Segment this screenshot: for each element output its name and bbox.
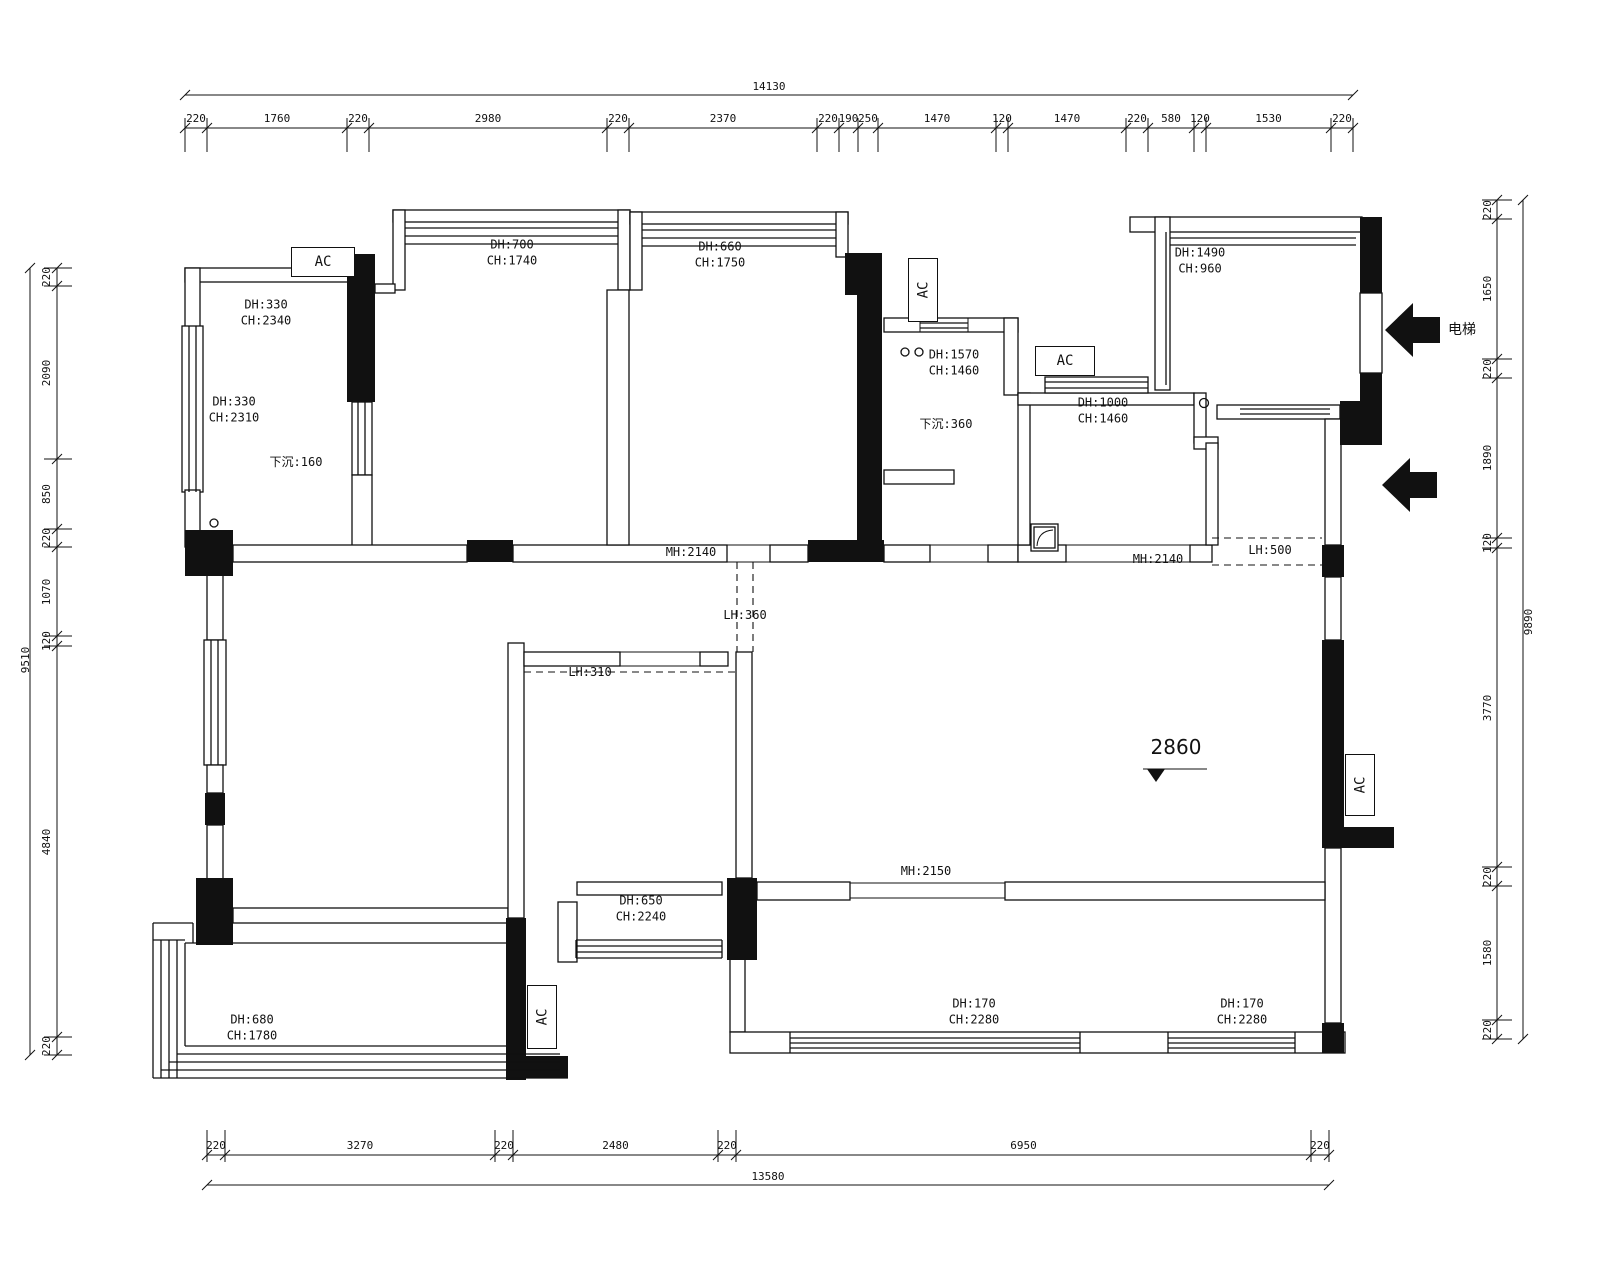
dim-label: 220 (1332, 112, 1352, 126)
label-study-window: DH:650 CH:2240 (616, 893, 667, 924)
dim-label: 250 (858, 112, 878, 126)
label-bay-window-1: DH:700 CH:1740 (487, 237, 538, 268)
label-elevator: 电梯 (1448, 321, 1476, 339)
dim-label: 13580 (751, 1170, 784, 1184)
label-lintel-study: LH:310 (568, 665, 611, 681)
dim-label: 220 (186, 112, 206, 126)
dim-label: 9510 (19, 647, 33, 674)
floor-drain (1031, 524, 1058, 551)
dim-label: 220 (40, 267, 54, 287)
ac-unit-box: AC (1035, 346, 1095, 376)
ac-label: AC (1057, 353, 1074, 369)
ac-unit-box: AC (1345, 754, 1375, 816)
door-openings (620, 545, 1190, 898)
label-level-mark: 2860 (1151, 734, 1202, 760)
dim-label: 850 (40, 484, 54, 504)
label-window-tr: DH:1490 CH:960 (1175, 245, 1226, 276)
dim-label: 1650 (1481, 276, 1495, 303)
ac-label: AC (315, 254, 332, 270)
dim-label: 220 (40, 1036, 54, 1056)
dim-label: 9890 (1522, 609, 1536, 636)
dim-label: 220 (1481, 867, 1495, 887)
ac-unit-box: AC (908, 258, 938, 322)
dim-label: 220 (206, 1139, 226, 1153)
ac-label: AC (1352, 777, 1368, 794)
label-lintel-mid: LH:360 (723, 608, 766, 624)
ac-label: AC (534, 1009, 550, 1026)
label-sunken-tl: 下沉:160 (270, 455, 323, 471)
label-door-hall: MH:2140 (666, 545, 717, 561)
dim-label: 2480 (602, 1139, 629, 1153)
stove-burner-icon (901, 348, 909, 356)
columns (185, 217, 1394, 1080)
dim-label: 120 (1190, 112, 1210, 126)
label-kitchen-window: DH:1570 CH:1460 (929, 347, 980, 378)
dim-label: 220 (494, 1139, 514, 1153)
label-br-window-1: DH:170 CH:2280 (949, 996, 1000, 1027)
dim-label: 1890 (1481, 445, 1495, 472)
dim-label: 220 (608, 112, 628, 126)
dim-label: 220 (1310, 1139, 1330, 1153)
ac-unit-box: AC (291, 247, 355, 277)
dim-label: 4840 (40, 828, 54, 855)
dim-label: 1530 (1255, 112, 1282, 126)
pipe-icon (210, 519, 218, 527)
dim-label: 220 (1481, 359, 1495, 379)
dim-label: 2370 (710, 112, 737, 126)
label-window-tl-b: DH:330 CH:2310 (209, 394, 260, 425)
dim-label: 120 (992, 112, 1012, 126)
dim-label: 120 (40, 631, 54, 651)
label-br-window-2: DH:170 CH:2280 (1217, 996, 1268, 1027)
dim-label: 1470 (1054, 112, 1081, 126)
label-lintel-hall: LH:500 (1248, 543, 1291, 559)
label-sunken-kitchen: 下沉:360 (920, 417, 973, 433)
dim-label: 220 (1481, 200, 1495, 220)
dim-label: 220 (348, 112, 368, 126)
entry-arrow-icon (1382, 458, 1437, 512)
dim-label: 220 (1481, 1020, 1495, 1040)
dim-label: 14130 (752, 80, 785, 94)
dim-label: 580 (1161, 112, 1181, 126)
ac-unit-box: AC (527, 985, 557, 1049)
dim-label: 220 (818, 112, 838, 126)
dim-label: 1070 (40, 578, 54, 605)
dim-label: 2090 (40, 359, 54, 386)
dim-label: 190 (839, 112, 859, 126)
dim-label: 3270 (347, 1139, 374, 1153)
level-mark-symbol (1143, 769, 1207, 782)
floor-plan-svg (0, 0, 1600, 1280)
stove-burner-icon (915, 348, 923, 356)
dim-label: 220 (40, 528, 54, 548)
floor-plan-page: DH:330 CH:2340 DH:330 CH:2310 下沉:160 DH:… (0, 0, 1600, 1280)
elevator-arrow-icon (1385, 303, 1440, 357)
dim-label: 1470 (924, 112, 951, 126)
dim-label: 1760 (264, 112, 291, 126)
dim-label: 6950 (1010, 1139, 1037, 1153)
ac-label: AC (915, 282, 931, 299)
dim-label: 120 (1481, 533, 1495, 553)
label-door-living: MH:2150 (901, 864, 952, 880)
balcony-curtain-wall (153, 923, 568, 1078)
label-bath-window: DH:1000 CH:1460 (1078, 395, 1129, 426)
label-window-tl-a: DH:330 CH:2340 (241, 297, 292, 328)
dim-label: 220 (1127, 112, 1147, 126)
dim-label: 220 (717, 1139, 737, 1153)
label-bay-window-2: DH:660 CH:1750 (695, 239, 746, 270)
dim-label: 2980 (475, 112, 502, 126)
dim-label: 3770 (1481, 694, 1495, 721)
label-balcony-window: DH:680 CH:1780 (227, 1012, 278, 1043)
label-door-bath: MH:2140 (1133, 552, 1184, 568)
dim-label: 1580 (1481, 940, 1495, 967)
